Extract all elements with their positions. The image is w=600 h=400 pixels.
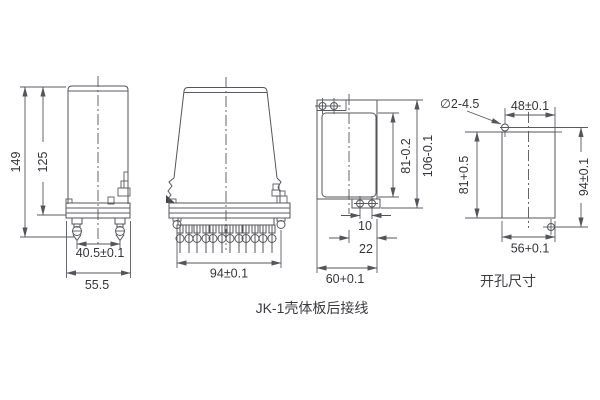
front-view: 94±0.1 — [166, 77, 290, 281]
hole-callout-leader — [467, 111, 501, 124]
rear-plate-view: 81-0.2 106-0.1 10 22 60+0.1 — [315, 94, 435, 286]
dim-plate-width: 60+0.1 — [326, 272, 365, 286]
dim-stud-spacing: 40.5±0.1 — [76, 246, 125, 260]
dim-hole-pitch: 10 — [358, 219, 372, 233]
engineering-drawing-page: 149 125 40.5±0.1 55.5 — [0, 0, 600, 400]
terminal-stud-right — [115, 218, 125, 241]
side-view-dimensions: 149 125 40.5±0.1 55.5 — [9, 87, 131, 292]
dim-opening-width: 56+0.1 — [511, 242, 550, 256]
cutout-dimensions: 48±0.1 ∅2-4.5 81+0.5 94±0.1 56+0.1 — [440, 97, 591, 256]
dim-hole-span-vertical: 94±0.1 — [577, 158, 591, 196]
dim-total-height: 149 — [9, 152, 23, 173]
front-view-case-outline — [174, 88, 277, 179]
plate-bottom-flange — [352, 196, 380, 212]
plate-outline — [317, 100, 377, 199]
front-view-base-plate — [169, 191, 290, 229]
dim-mounting-width: 94±0.1 — [210, 267, 248, 281]
dim-cutout-height: 81-0.2 — [399, 138, 413, 173]
hole-callout-label: ∅2-4.5 — [440, 97, 479, 111]
dim-overall-width: 55.5 — [85, 278, 109, 292]
side-view: 149 125 40.5±0.1 55.5 — [9, 76, 131, 292]
cutout-caption: 开孔尺寸 — [480, 273, 536, 289]
panel-cutout-view: 48±0.1 ∅2-4.5 81+0.5 94±0.1 56+0.1 开孔尺寸 — [440, 97, 591, 289]
dim-overall-height: 106-0.1 — [421, 135, 435, 177]
front-view-right-flange — [272, 178, 281, 203]
dim-hole-span-horizontal: 48±0.1 — [511, 99, 549, 113]
drawing-title: JK-1壳体板后接线 — [256, 300, 369, 316]
side-view-terminal-detail — [108, 172, 130, 204]
dim-case-height: 125 — [36, 152, 50, 173]
relay-outline-drawing: 149 125 40.5±0.1 55.5 — [0, 0, 600, 400]
dim-flange-width: 22 — [359, 242, 373, 256]
dim-opening-height: 81+0.5 — [457, 156, 471, 195]
